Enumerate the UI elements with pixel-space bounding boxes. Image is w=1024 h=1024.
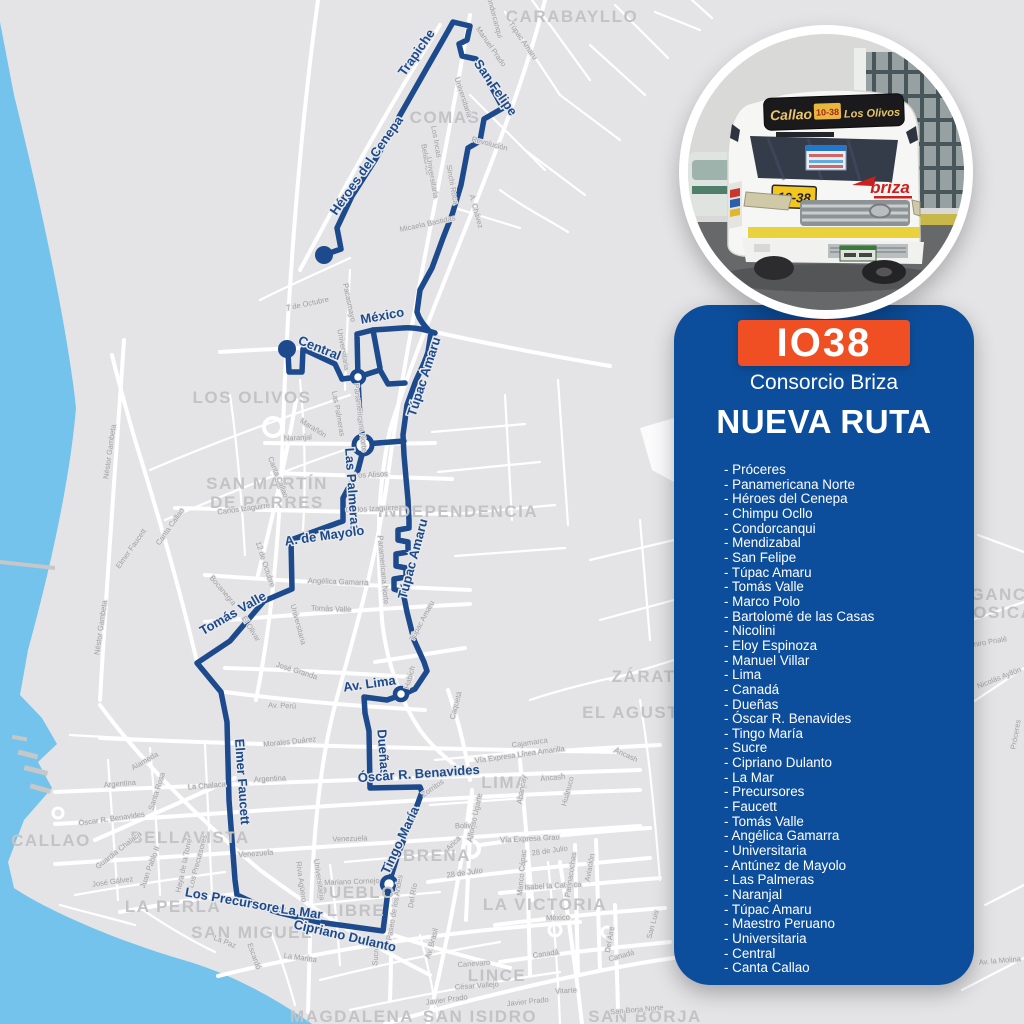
route-street-item: - Angélica Gamarra	[724, 829, 959, 844]
route-street-item: - Manuel Villar	[724, 654, 959, 669]
route-street-item: - Bartolomé de las Casas	[724, 610, 959, 625]
route-street-item: - San Felipe	[724, 551, 959, 566]
district-label: SAN ISIDRO	[423, 1007, 537, 1024]
sign-destination-left: Callao	[770, 106, 813, 123]
operator-name: Consorcio Briza	[674, 371, 974, 395]
street-label: Tomás Valle	[311, 603, 352, 613]
route-street-item: - Dueñas	[724, 698, 959, 713]
street-label: México	[546, 913, 570, 923]
route-street-item: - Próceres	[724, 463, 959, 478]
street-label: Venezuela	[332, 833, 368, 843]
route-street-item: - Maestro Peruano	[724, 917, 959, 932]
route-street-item: - Las Palmeras	[724, 873, 959, 888]
district-label: INDEPENDENCIA	[378, 502, 538, 521]
route-street-item: - Antúnez de Mayolo	[724, 859, 959, 874]
route-street-item: - Héroes del Cenepa	[724, 492, 959, 507]
route-code-badge: IO38	[738, 320, 910, 366]
street-label: Naranjal	[284, 432, 313, 442]
district-label: LA VICTORIA	[483, 895, 607, 914]
route-street-item: - Canta Callao	[724, 961, 959, 976]
route-terminal-marker	[315, 246, 333, 264]
route-street-item: - Canadá	[724, 683, 959, 698]
route-street-item: - Universitaria	[724, 844, 959, 859]
route-street-item: - Tingo María	[724, 727, 959, 742]
route-street-item: - Condorcanqui	[724, 522, 959, 537]
route-street-item: - Mendizabal	[724, 536, 959, 551]
route-street-item: - Tomás Valle	[724, 815, 959, 830]
route-street-item: - Faucett	[724, 800, 959, 815]
route-street-item: - Óscar R. Benavides	[724, 712, 959, 727]
route-street-item: - Eloy Espinoza	[724, 639, 959, 654]
license-plate	[840, 246, 876, 261]
grille	[800, 200, 910, 226]
route-street-item: - Marco Polo	[724, 595, 959, 610]
route-info-panel: Callao 10-38 Los Olivos	[674, 305, 974, 985]
district-label: LOS OLIVOS	[193, 388, 312, 407]
panel-title: NUEVA RUTA	[674, 403, 974, 441]
district-label: SAN MARTÍN	[206, 474, 328, 493]
route-street-item: - Túpac Amaru	[724, 903, 959, 918]
route-code: IO38	[777, 321, 872, 366]
route-street-item: - Tomás Valle	[724, 580, 959, 595]
route-street-item: - Universitaria	[724, 932, 959, 947]
bus-photo: Callao 10-38 Los Olivos	[688, 34, 964, 310]
sign-destination-right: Los Olivos	[844, 107, 901, 121]
route-street-item: - Nicolini	[724, 624, 959, 639]
route-street-item: - La Mar	[724, 771, 959, 786]
route-street-item: - Panamericana Norte	[724, 478, 959, 493]
district-label: BREÑA	[403, 845, 471, 865]
route-terminal-marker	[278, 340, 296, 358]
brand-name: briza	[870, 178, 910, 197]
route-street-list: - Próceres- Panamericana Norte- Héroes d…	[724, 463, 959, 976]
route-street-item: - Túpac Amaru	[724, 566, 959, 581]
sign-code: 10-38	[816, 107, 839, 118]
district-label: CALLAO	[11, 831, 91, 850]
street-label: Vitarte	[555, 985, 577, 995]
bus-illustration: Callao 10-38 Los Olivos	[688, 34, 964, 310]
street-label: Av. Perú	[268, 701, 296, 711]
bus-photo-frame: Callao 10-38 Los Olivos	[679, 25, 973, 319]
route-street-item: - Sucre	[724, 741, 959, 756]
infographic: CARABAYLLOCOMASLOS OLIVOSSAN MARTÍNDE PO…	[0, 0, 1024, 1024]
van: Callao 10-38 Los Olivos	[728, 90, 924, 284]
route-street-item: - Chimpu Ocllo	[724, 507, 959, 522]
route-street-item: - Naranjal	[724, 888, 959, 903]
district-label: MAGDALENA	[290, 1007, 414, 1024]
route-street-item: - Central	[724, 947, 959, 962]
route-street-item: - Precursores	[724, 785, 959, 800]
route-street-item: - Cipriano Dulanto	[724, 756, 959, 771]
district-label: CARABAYLLO	[506, 7, 638, 26]
district-label: LIBRE	[327, 901, 386, 920]
street-label: Argentina	[254, 773, 287, 784]
roof-sign: Callao 10-38 Los Olivos	[763, 94, 904, 131]
route-street-item: - Lima	[724, 668, 959, 683]
